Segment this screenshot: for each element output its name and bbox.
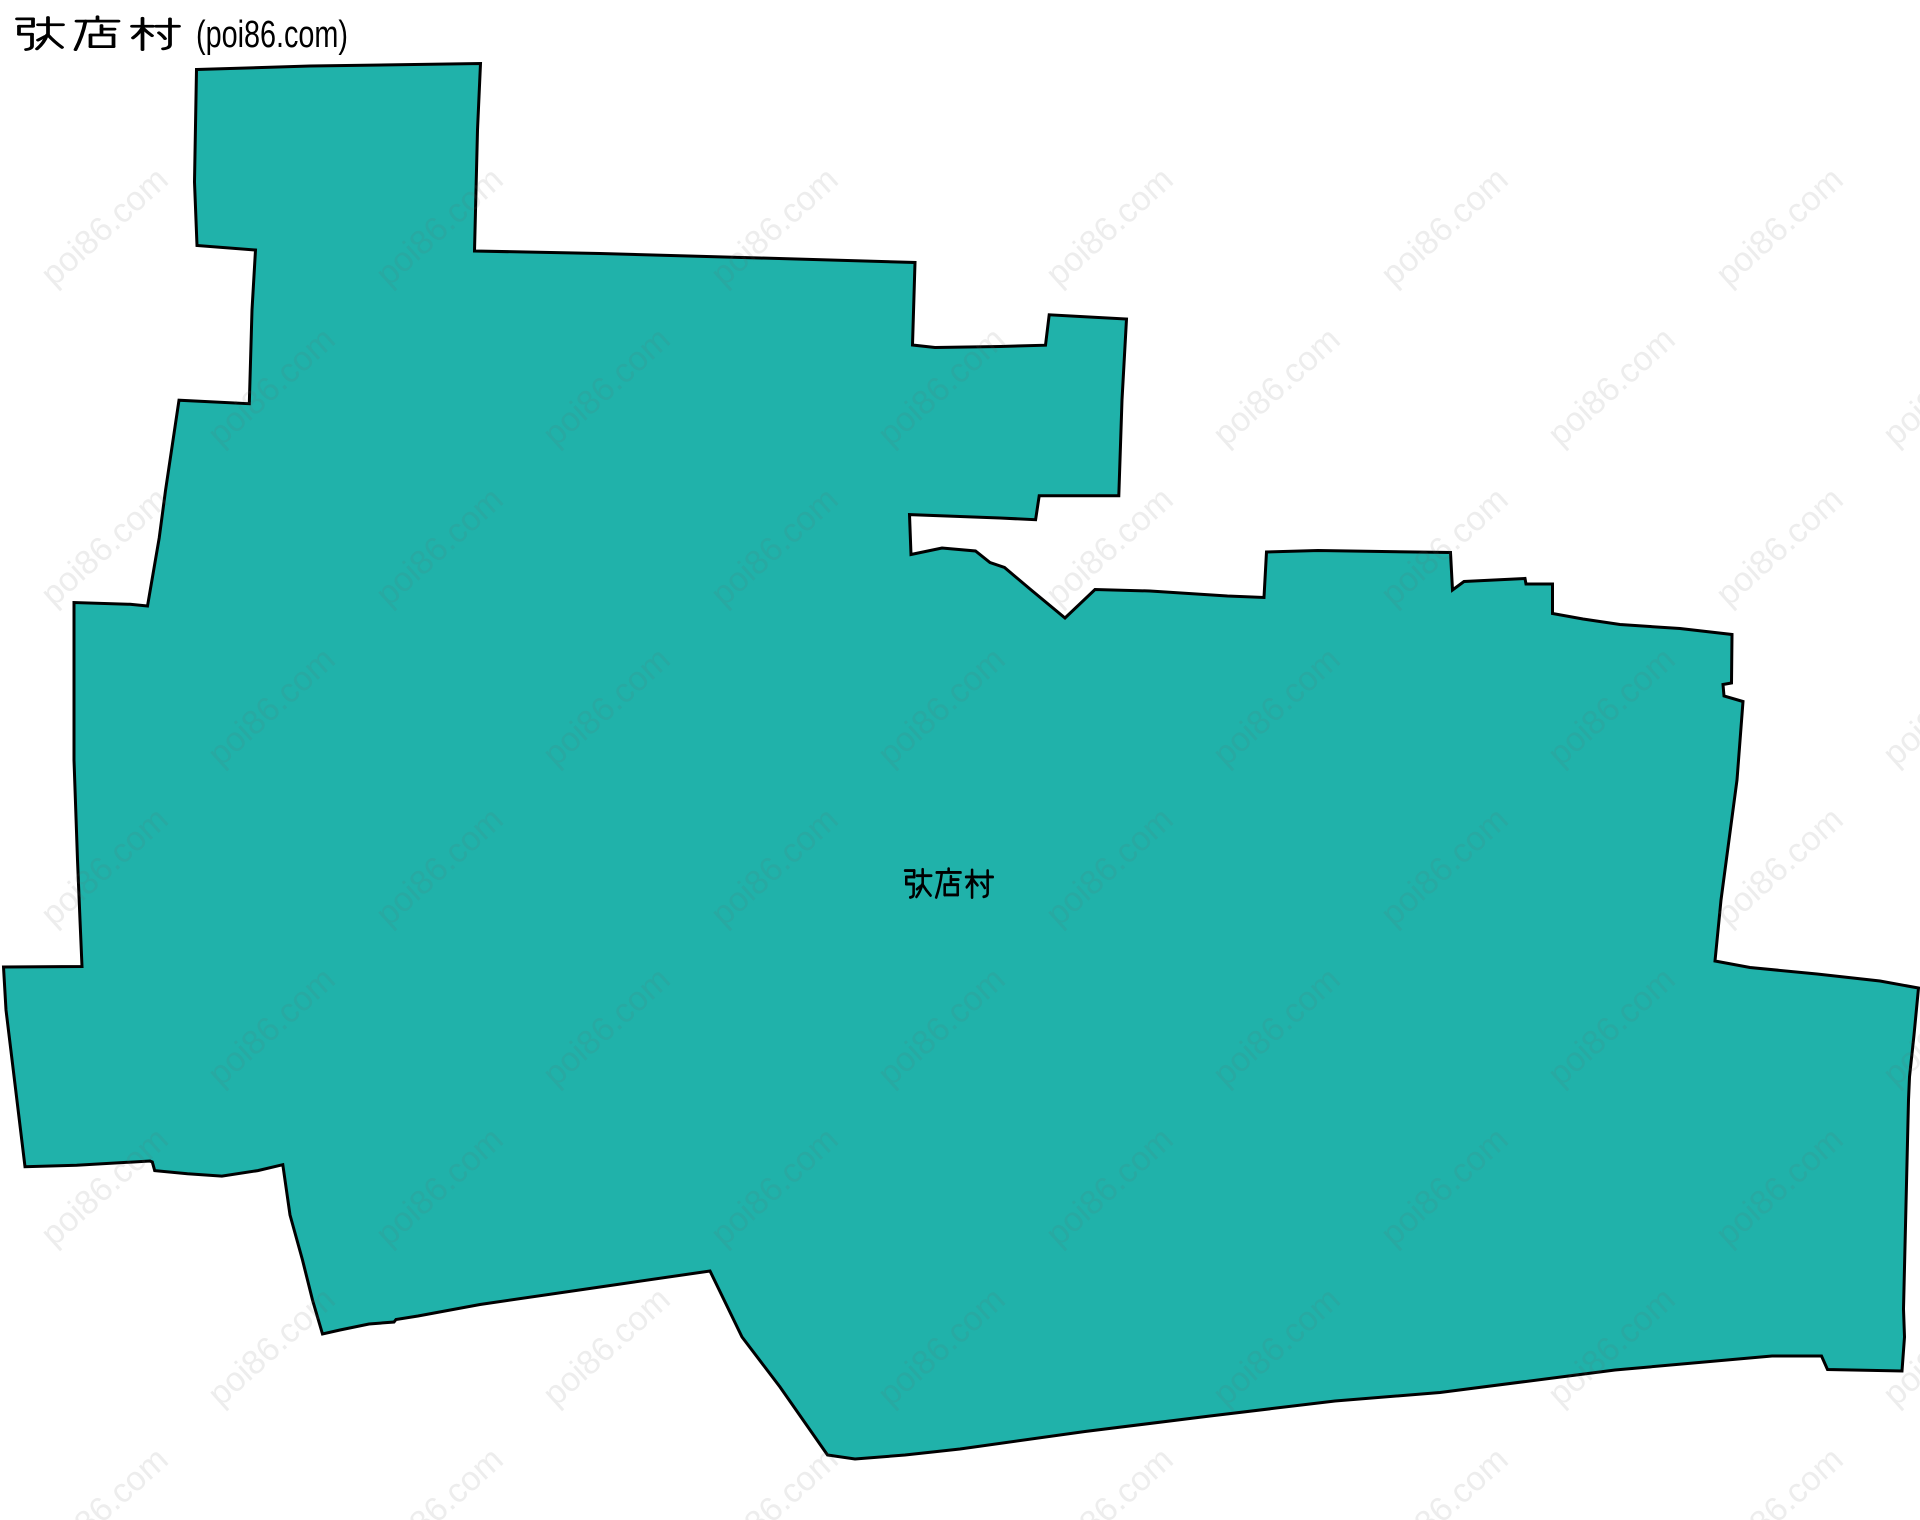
svg-text:(poi86.com): (poi86.com) [196,14,348,56]
